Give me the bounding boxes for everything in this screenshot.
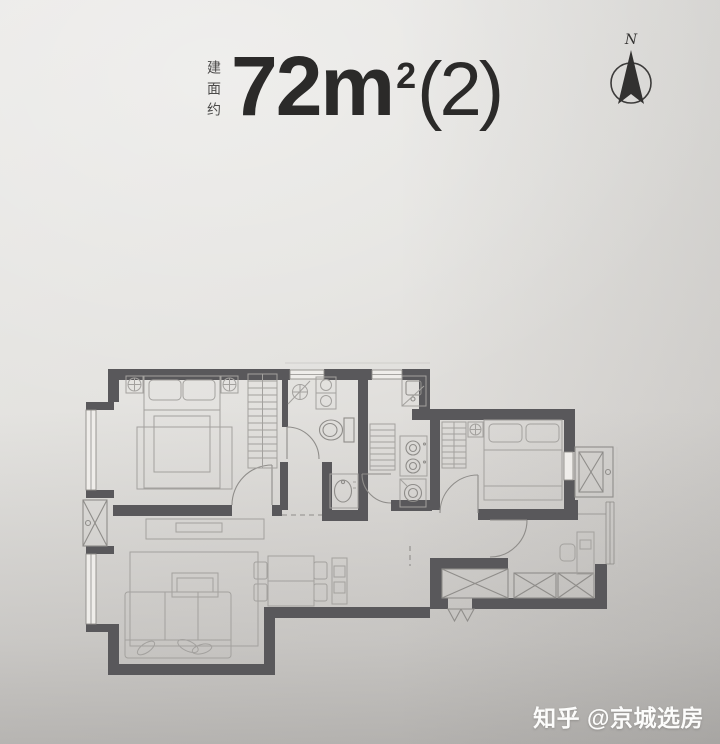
doors <box>232 427 527 621</box>
coffee-table <box>172 573 218 597</box>
area-figure: 72m2(2) <box>231 44 501 138</box>
dining-set <box>254 556 327 606</box>
area-label-vertical: 建面约 <box>204 60 224 138</box>
walls <box>86 369 607 675</box>
hall-cabinets <box>514 573 594 598</box>
kitchen <box>370 376 427 507</box>
sideboard <box>332 558 347 604</box>
study-window <box>606 502 614 564</box>
title-block: 建面约 72m2(2) <box>204 44 501 138</box>
toilet-icon <box>320 418 355 442</box>
north-compass-icon: N <box>594 28 670 120</box>
shaft <box>575 447 613 497</box>
compass-needle <box>618 50 644 104</box>
area-value: 72m <box>231 39 393 133</box>
area-superscript: 2 <box>396 55 416 96</box>
master-wardrobe <box>248 374 277 468</box>
kitchen-shelf <box>370 424 395 470</box>
floor-plan-photo: 建面约 72m2(2) N <box>0 0 720 744</box>
study <box>560 532 594 574</box>
bath-cabinet <box>316 377 336 409</box>
second-bed <box>484 420 562 500</box>
stove-icon <box>400 436 427 476</box>
tv-console <box>146 519 264 539</box>
floor-plan-drawing <box>80 352 620 687</box>
second-bedroom <box>442 420 562 500</box>
compass-north-label: N <box>624 32 638 48</box>
entry-storage-closet <box>442 569 508 598</box>
master-bedroom <box>126 374 277 489</box>
second-wardrobe <box>442 422 466 468</box>
watermark: 知乎 @京城选房 <box>533 699 704 733</box>
area-suffix: (2) <box>417 47 501 132</box>
shower-icon <box>293 385 308 400</box>
ac-platform <box>83 500 107 546</box>
sofa <box>125 592 231 658</box>
bath-vanity-sink <box>330 474 358 508</box>
bedside-lamp <box>468 422 483 437</box>
entry-door-icon <box>448 609 474 621</box>
living-dining-room <box>125 519 347 658</box>
